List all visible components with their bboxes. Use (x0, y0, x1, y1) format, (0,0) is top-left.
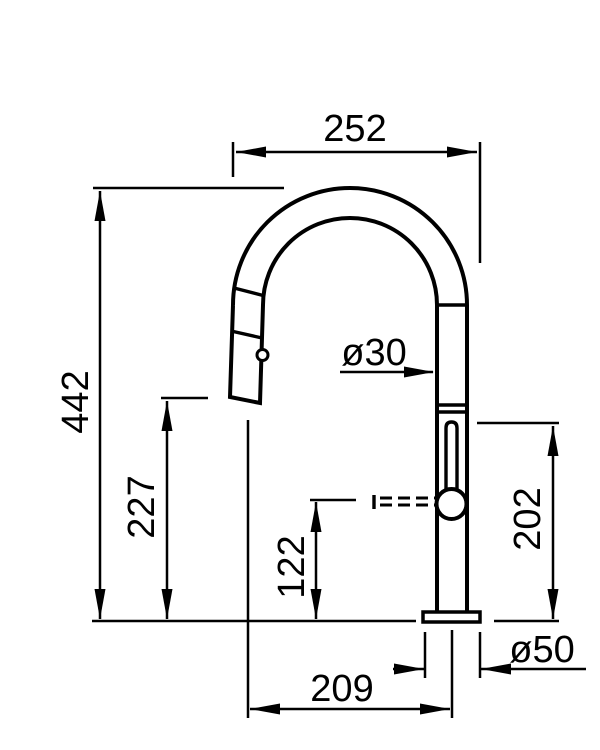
arrowhead-down (162, 589, 173, 619)
arrowhead-down (95, 589, 106, 619)
arrowhead-up (311, 502, 322, 532)
dim-base-diameter-label: ø50 (509, 629, 574, 671)
arrowhead-left (250, 704, 280, 715)
dim-height-body-label: 202 (507, 487, 549, 550)
faucet-outline (230, 188, 480, 622)
arrowhead-right (394, 664, 424, 675)
faucet-technical-drawing: 252 442 227 122 202 ø30 (0, 0, 600, 750)
dim-height-total-label: 442 (55, 370, 97, 433)
arrowhead-left (481, 664, 511, 675)
spout-arc-outer (233, 188, 467, 612)
sprayer-button (257, 350, 268, 361)
arrowhead-up (548, 426, 559, 456)
dim-pipe-diameter-label: ø30 (341, 332, 406, 374)
arrowhead-right (447, 147, 477, 158)
dim-height-spout-label: 227 (121, 475, 163, 538)
spray-head-joint-upper (234, 288, 265, 296)
arrowhead-down (548, 589, 559, 619)
spray-head-joint-lower (231, 331, 262, 338)
dim-width-top: 252 (233, 108, 480, 263)
arrowhead-up (162, 401, 173, 431)
dim-reach-bottom-label: 209 (310, 668, 373, 710)
dim-height-hose-label: 122 (271, 535, 313, 598)
hose-dashed-outline (374, 495, 436, 509)
arrowhead-right (404, 367, 434, 378)
handle-ball (437, 489, 467, 519)
handle-slot (446, 422, 457, 489)
arrowhead-left (236, 147, 266, 158)
dim-base-diameter: ø50 (393, 629, 586, 678)
arrowhead-up (95, 191, 106, 221)
base-flange (423, 612, 480, 622)
arrowhead-right (420, 704, 450, 715)
dim-width-top-label: 252 (323, 108, 386, 150)
dim-pipe-diameter: ø30 (340, 332, 434, 378)
dim-height-spout: 227 (121, 398, 208, 619)
dim-height-total: 442 (55, 188, 284, 619)
dim-height-hose: 122 (271, 500, 356, 619)
dim-height-body: 202 (477, 423, 559, 621)
drawing-svg: 252 442 227 122 202 ø30 (0, 0, 600, 750)
